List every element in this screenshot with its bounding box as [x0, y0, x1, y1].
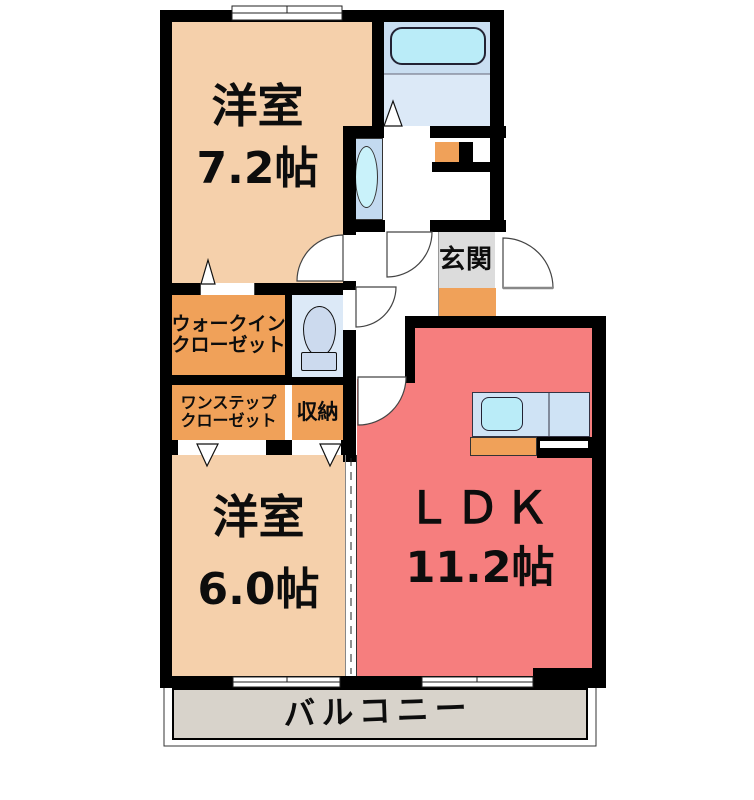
entrance-name: 玄関	[439, 246, 493, 275]
wall	[432, 162, 496, 172]
wall	[285, 283, 292, 385]
wall	[160, 10, 504, 22]
wall	[490, 10, 504, 220]
bedroom1-size: 7.2帖	[197, 144, 319, 193]
osc-line2: クローゼット	[180, 412, 276, 430]
bathtub-icon	[390, 27, 486, 65]
door-arc-toilet	[356, 287, 396, 327]
label-one-step-closet: ワンステップ クローゼット	[172, 386, 285, 438]
label-bedroom1: 洋室 7.2帖	[172, 62, 343, 212]
door-arc-entrance	[503, 238, 553, 288]
osc-line1: ワンステップ	[181, 394, 277, 412]
door-opening	[292, 442, 341, 455]
entrance-step	[438, 288, 496, 316]
ldk-name: ＬＤＫ	[407, 484, 554, 533]
door-opening	[343, 290, 356, 330]
washbasin-icon	[355, 146, 378, 208]
wall	[592, 316, 606, 688]
label-walk-in-closet: ウォークイン クローゼット	[172, 297, 285, 373]
door-opening	[385, 220, 430, 232]
wall	[343, 126, 356, 235]
wall	[372, 22, 384, 126]
floor-plan: 洋室 7.2帖 玄関 ウォークイン クローゼット ワンステップ クローゼット 収…	[0, 0, 754, 800]
wic-line1: ウォークイン	[172, 314, 286, 335]
kitchen-lower-cabinet	[470, 437, 537, 456]
door-opening	[178, 442, 266, 455]
wall	[405, 316, 415, 383]
storage-name: 収納	[297, 401, 339, 425]
label-ldk: ＬＤＫ 11.2帖	[390, 468, 570, 608]
room-bedroom-7-2-extension	[343, 22, 372, 126]
ldk-size: 11.2帖	[405, 544, 554, 592]
kitchen-hatch	[540, 441, 588, 448]
wall	[160, 440, 178, 455]
door-opening	[384, 126, 430, 138]
room-ldk-upper	[415, 328, 592, 383]
label-bedroom2: 洋室 6.0帖	[172, 478, 345, 628]
wall	[253, 283, 343, 295]
room-bath-lower	[384, 74, 490, 126]
balcony-name: バルコニー	[283, 691, 474, 733]
wall	[405, 316, 606, 328]
bedroom2-size: 6.0帖	[198, 565, 320, 614]
label-entrance: 玄関	[436, 238, 496, 284]
door-opening	[200, 283, 255, 295]
wic-line2: クローゼット	[172, 335, 286, 356]
toilet-bowl	[303, 306, 336, 356]
toilet-tank	[301, 352, 337, 371]
wall	[160, 10, 172, 688]
wall	[285, 377, 356, 385]
wall	[172, 375, 292, 385]
door-opening	[495, 232, 504, 288]
bedroom1-name: 洋室	[212, 81, 304, 133]
door-opening	[343, 235, 356, 281]
wall	[341, 440, 356, 455]
wall	[343, 281, 356, 290]
label-storage: 収納	[290, 385, 345, 440]
kitchen-sink-icon	[481, 397, 523, 431]
door-arc-washroom	[387, 232, 432, 277]
wall	[172, 283, 200, 295]
bedroom2-name: 洋室	[213, 492, 305, 544]
washer-pan-icon	[435, 142, 459, 162]
washroom-shelf	[473, 142, 490, 162]
wall	[266, 440, 292, 455]
